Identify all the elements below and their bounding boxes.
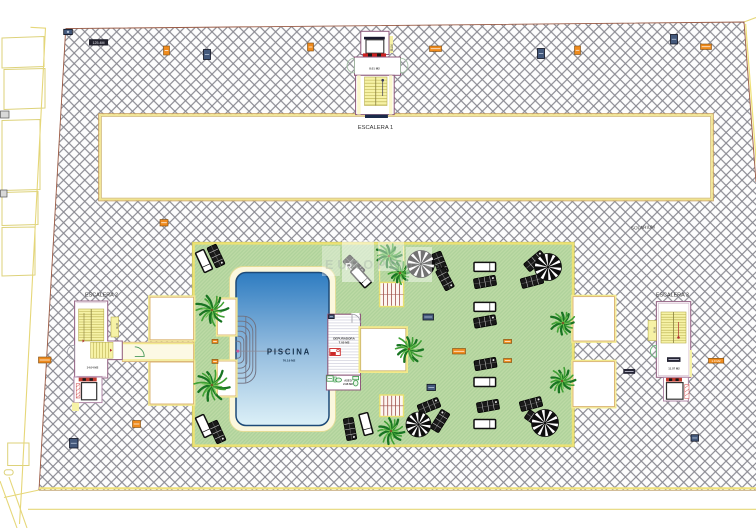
svg-text:RTB: RTB — [115, 323, 119, 329]
svg-text:PISCINA: PISCINA — [267, 348, 311, 357]
svg-text:ESCALERA 1: ESCALERA 1 — [358, 125, 393, 131]
svg-text:RTB: RTB — [390, 45, 394, 52]
svg-text:RTB: RTB — [653, 327, 657, 333]
svg-text:11.07 M2: 11.07 M2 — [668, 366, 680, 370]
svg-text:8.01 M2: 8.01 M2 — [369, 67, 380, 71]
svg-text:7.05 M2: 7.05 M2 — [339, 341, 350, 345]
svg-text:EUROPE: EUROPE — [325, 258, 402, 272]
svg-text:14.04 M2: 14.04 M2 — [87, 366, 99, 370]
svg-text:1.0 M2: 1.0 M2 — [711, 359, 721, 363]
svg-text:2.96 M2: 2.96 M2 — [343, 382, 353, 386]
svg-text:ESCALERA 3: ESCALERA 3 — [656, 293, 689, 299]
svg-text:ASEO: ASEO — [344, 379, 352, 383]
svg-text:homes: homes — [398, 259, 442, 271]
svg-text:125.4M: 125.4M — [93, 41, 105, 45]
svg-text:R: R — [345, 262, 353, 273]
svg-text:ESCALERA 2: ESCALERA 2 — [85, 293, 118, 299]
svg-text:76.19 M2: 76.19 M2 — [283, 359, 296, 363]
